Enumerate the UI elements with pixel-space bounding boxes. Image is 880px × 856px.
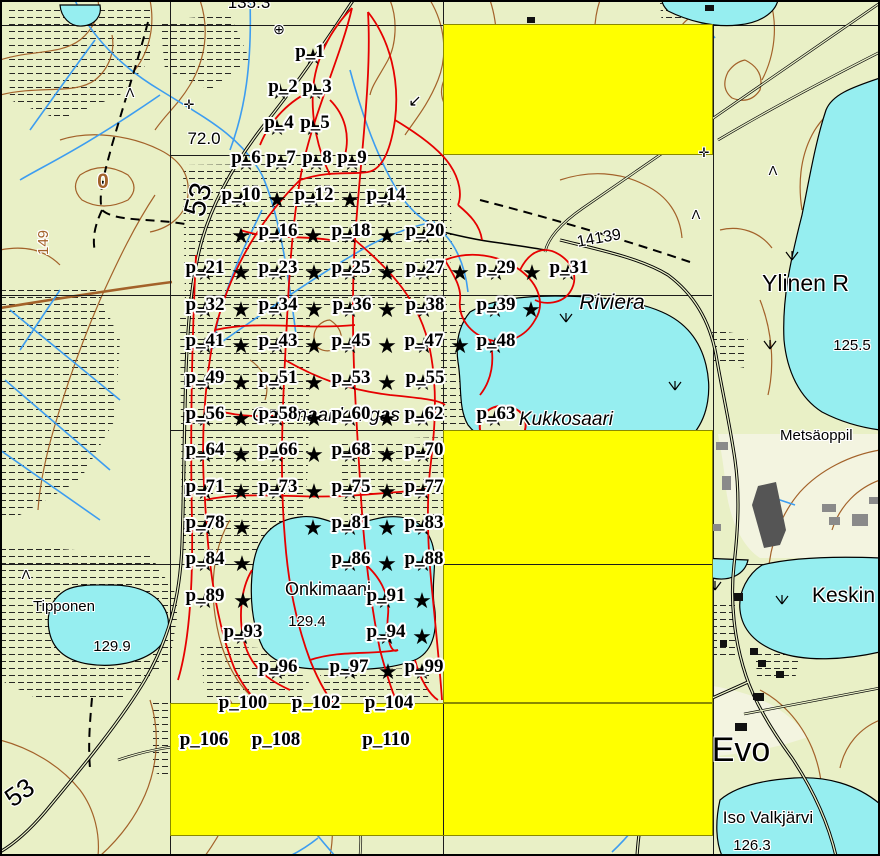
sample-point-star: ★ — [231, 445, 251, 467]
tree-symbol-icon: Λ — [126, 86, 135, 99]
lake-name-onkimaanjarvi: Onkimaanj — [285, 580, 371, 598]
spot-height-135-3: 135.3 — [228, 0, 271, 11]
water-level-129-9: 129.9 — [93, 639, 131, 654]
map-overlay: 135.372.005314914139RivieraYlinen R125.5… — [0, 0, 880, 856]
sample-point-label-p_29: p_29 — [476, 258, 515, 277]
sample-point-label-p_73: p_73 — [258, 477, 297, 496]
sample-point-label-p_39: p_39 — [476, 295, 515, 314]
sample-point-star: ★ — [231, 263, 251, 285]
sample-point-label-p_78: p_78 — [185, 513, 224, 532]
sample-point-label-p_56: p_56 — [185, 404, 224, 423]
lake-name-iso-valkjarvi: Iso Valkjärvi — [723, 809, 813, 826]
water-level-129-4: 129.4 — [288, 614, 326, 629]
island-name-kukkosaari: Kukkosaari — [519, 410, 613, 429]
sample-point-star: ★ — [231, 226, 251, 248]
grid-line-segment — [443, 704, 444, 835]
sample-point-star: ★ — [412, 627, 432, 649]
sample-point-label-p_62: p_62 — [404, 404, 443, 423]
sample-point-label-p_104: p_104 — [365, 693, 414, 712]
lake-name-riviera: Riviera — [579, 292, 644, 313]
sample-point-label-p_66: p_66 — [258, 440, 297, 459]
sample-point-star: ★ — [377, 482, 397, 504]
lake-name-keskinen: Keskin — [812, 585, 875, 606]
sample-point-label-p_100: p_100 — [219, 693, 268, 712]
sample-point-label-p_18: p_18 — [331, 221, 370, 240]
tree-symbol-icon: Λ — [769, 164, 778, 177]
sample-point-star: ★ — [304, 409, 324, 431]
sample-point-star: ★ — [304, 300, 324, 322]
sample-point-star: ★ — [232, 554, 252, 576]
sample-point-label-p_47: p_47 — [404, 331, 443, 350]
sample-point-label-p_88: p_88 — [404, 549, 443, 568]
sample-point-star: ★ — [377, 373, 397, 395]
sample-point-label-p_102: p_102 — [292, 693, 341, 712]
sample-point-star: ★ — [303, 518, 323, 540]
sample-point-label-p_96: p_96 — [258, 657, 297, 676]
sample-point-label-p_1: p_1 — [295, 42, 325, 61]
sample-point-star: ★ — [522, 263, 542, 285]
sample-point-label-p_20: p_20 — [405, 221, 444, 240]
sample-point-label-p_108: p_108 — [252, 730, 301, 749]
sample-point-label-p_51: p_51 — [258, 368, 297, 387]
contour-number-149: 149 — [36, 230, 51, 255]
sample-point-star: ★ — [304, 336, 324, 358]
sample-point-star: ★ — [304, 482, 324, 504]
sample-point-label-p_63: p_63 — [476, 404, 515, 423]
road-number-14139: 14139 — [576, 227, 623, 250]
sample-point-label-p_75: p_75 — [331, 477, 370, 496]
tree-symbol-icon: Λ — [692, 208, 701, 221]
contour-number-0: 0 — [97, 171, 109, 192]
powerline-cross-icon: ✛ — [699, 146, 710, 159]
sample-point-label-p_9: p_9 — [337, 148, 367, 167]
sample-point-label-p_110: p_110 — [362, 730, 410, 749]
sample-point-label-p_53: p_53 — [331, 368, 370, 387]
highlight-cell — [170, 703, 713, 836]
sample-point-label-p_43: p_43 — [258, 331, 297, 350]
sample-point-label-p_58: p_58 — [258, 404, 297, 423]
sample-point-label-p_89: p_89 — [185, 586, 224, 605]
sample-point-label-p_81: p_81 — [331, 513, 370, 532]
sample-point-label-p_8: p_8 — [302, 148, 332, 167]
sample-point-star: ★ — [377, 226, 397, 248]
powerline-cross-icon: ✛ — [184, 98, 195, 111]
sample-point-label-p_5: p_5 — [300, 113, 330, 132]
sample-point-label-p_45: p_45 — [331, 331, 370, 350]
sample-point-star: ★ — [450, 336, 470, 358]
sample-point-label-p_14: p_14 — [366, 185, 405, 204]
sample-point-label-p_25: p_25 — [331, 258, 370, 277]
sample-point-label-p_23: p_23 — [258, 258, 297, 277]
sample-point-label-p_48: p_48 — [476, 331, 515, 350]
sample-point-label-p_91: p_91 — [366, 586, 405, 605]
sample-point-label-p_86: p_86 — [331, 549, 370, 568]
sample-point-star: ★ — [267, 190, 287, 212]
sample-point-star: ★ — [450, 263, 470, 285]
map-canvas[interactable]: 135.372.005314914139RivieraYlinen R125.5… — [0, 0, 880, 856]
lake-name-ylinen: Ylinen R — [762, 272, 849, 295]
sample-point-label-p_34: p_34 — [258, 295, 297, 314]
sample-point-star: ★ — [340, 190, 360, 212]
sample-point-star: ★ — [412, 591, 432, 613]
sample-point-label-p_32: p_32 — [185, 295, 224, 314]
sample-point-star: ★ — [377, 445, 397, 467]
sample-point-star: ★ — [232, 518, 252, 540]
water-level-125-5: 125.5 — [833, 338, 871, 353]
compartment-number-53: 53 — [180, 180, 218, 220]
place-name-evo: Evo — [712, 733, 771, 767]
sample-point-label-p_49: p_49 — [185, 368, 224, 387]
sample-point-label-p_4: p_4 — [264, 113, 294, 132]
sample-point-star: ★ — [377, 518, 397, 540]
sample-point-label-p_99: p_99 — [404, 657, 443, 676]
benchmark-icon: ⊕ — [273, 22, 285, 36]
sample-point-star: ★ — [231, 300, 251, 322]
sample-point-label-p_10: p_10 — [221, 185, 260, 204]
sample-point-star: ★ — [233, 591, 253, 613]
sample-point-label-p_2: p_2 — [268, 77, 298, 96]
sample-point-star: ★ — [378, 662, 398, 684]
sample-point-star: ★ — [304, 263, 324, 285]
sample-point-label-p_71: p_71 — [185, 477, 224, 496]
grid-line-segment — [444, 564, 712, 565]
sample-point-label-p_6: p_6 — [231, 148, 261, 167]
sample-point-label-p_93: p_93 — [223, 622, 262, 641]
sample-point-star: ★ — [377, 263, 397, 285]
sample-point-label-p_27: p_27 — [405, 258, 444, 277]
sample-point-star: ★ — [377, 409, 397, 431]
sample-point-star: ★ — [231, 409, 251, 431]
sample-point-label-p_21: p_21 — [185, 258, 224, 277]
sample-point-label-p_31: p_31 — [549, 258, 588, 277]
highlight-cell — [443, 430, 713, 703]
sample-point-label-p_64: p_64 — [185, 440, 224, 459]
sample-point-label-p_36: p_36 — [332, 295, 371, 314]
sample-point-star: ★ — [231, 336, 251, 358]
sample-point-label-p_16: p_16 — [258, 221, 297, 240]
sample-point-star: ★ — [377, 300, 397, 322]
sample-point-label-p_70: p_70 — [404, 440, 443, 459]
sample-point-star: ★ — [231, 482, 251, 504]
sample-point-label-p_83: p_83 — [404, 513, 443, 532]
sample-point-star: ★ — [521, 300, 541, 322]
tree-symbol-icon: Λ — [22, 568, 31, 581]
sample-point-label-p_3: p_3 — [302, 77, 332, 96]
water-level-126-3: 126.3 — [733, 838, 771, 853]
sample-point-star: ★ — [304, 445, 324, 467]
sample-point-label-p_77: p_77 — [404, 477, 443, 496]
sample-point-label-p_97: p_97 — [329, 657, 368, 676]
road-number-53: 53 — [0, 773, 39, 811]
sample-point-label-p_12: p_12 — [294, 185, 333, 204]
sample-point-label-p_60: p_60 — [331, 404, 370, 423]
slope-arrow-icon: ↙ — [408, 94, 421, 110]
sample-point-star: ★ — [377, 554, 397, 576]
sample-point-star: ★ — [304, 373, 324, 395]
pond-name-tipponen: Tipponen — [33, 599, 95, 614]
place-name-metsaoppilaitos: Metsäoppil — [780, 428, 853, 443]
sample-point-label-p_94: p_94 — [366, 622, 405, 641]
sample-point-label-p_7: p_7 — [266, 148, 296, 167]
sample-point-label-p_106: p_106 — [180, 730, 229, 749]
sample-point-label-p_41: p_41 — [185, 331, 224, 350]
sample-point-star: ★ — [231, 373, 251, 395]
sample-point-star: ★ — [377, 336, 397, 358]
sample-point-label-p_68: p_68 — [331, 440, 370, 459]
spot-height-72-0: 72.0 — [187, 130, 220, 147]
highlight-cell — [443, 24, 713, 155]
sample-point-label-p_55: p_55 — [405, 368, 444, 387]
sample-point-label-p_38: p_38 — [405, 295, 444, 314]
sample-point-star: ★ — [303, 226, 323, 248]
sample-point-label-p_84: p_84 — [185, 549, 224, 568]
